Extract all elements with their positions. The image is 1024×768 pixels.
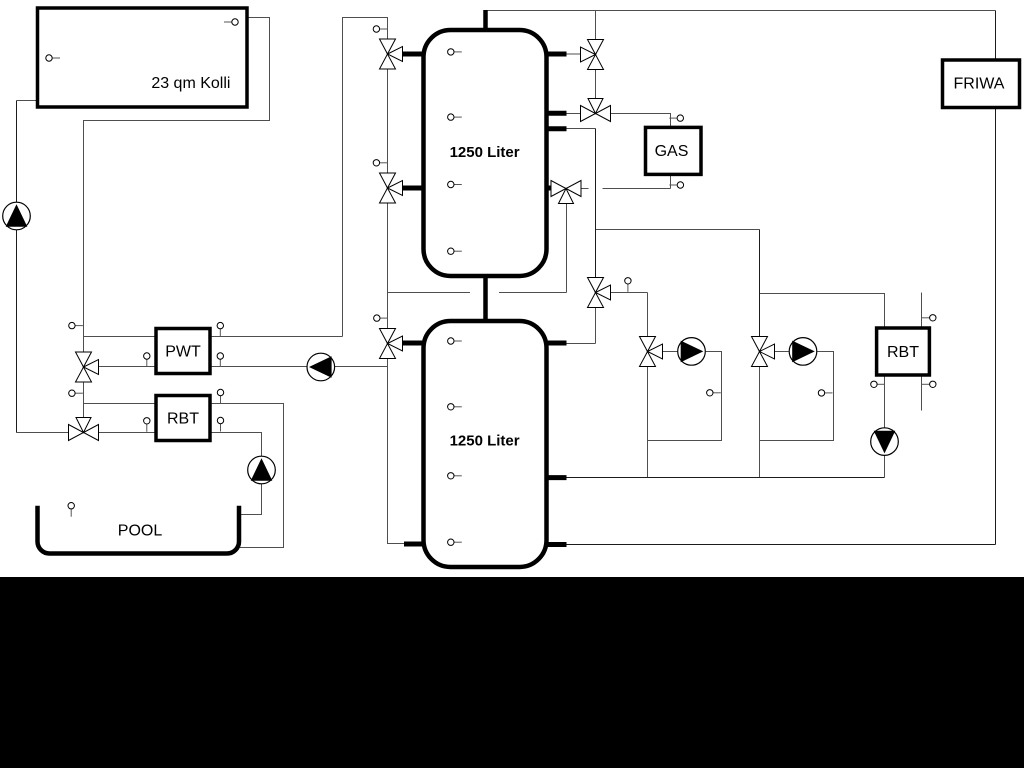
- svg-text:POOL: POOL: [118, 523, 163, 540]
- svg-text:1250 Liter: 1250 Liter: [450, 144, 520, 161]
- svg-text:1250 Liter: 1250 Liter: [450, 433, 520, 450]
- svg-text:RBT: RBT: [887, 344, 919, 361]
- svg-text:GAS: GAS: [655, 143, 689, 160]
- svg-text:23 qm Kolli: 23 qm Kolli: [151, 75, 230, 92]
- svg-text:PWT: PWT: [165, 344, 201, 361]
- svg-text:RBT: RBT: [167, 411, 199, 428]
- svg-text:FRIWA: FRIWA: [954, 76, 1005, 93]
